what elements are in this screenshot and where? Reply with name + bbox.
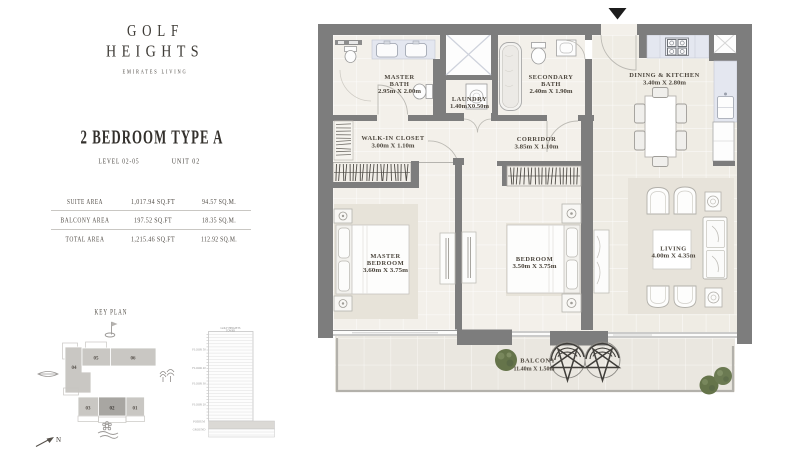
svg-text:GOLF: GOLF — [127, 21, 184, 40]
svg-text:FLOOR 20: FLOOR 20 — [192, 403, 206, 407]
svg-text:01: 01 — [133, 407, 139, 412]
svg-text:3.40m X 2.80m: 3.40m X 2.80m — [643, 81, 686, 87]
svg-text:197.52 SQ.FT: 197.52 SQ.FT — [134, 217, 172, 225]
svg-text:06: 06 — [131, 357, 137, 362]
svg-text:05: 05 — [94, 357, 100, 362]
svg-text:02: 02 — [110, 407, 116, 412]
svg-text:WALK-IN CLOSET: WALK-IN CLOSET — [361, 135, 425, 142]
svg-text:N: N — [56, 436, 61, 444]
svg-text:TOTAL AREA: TOTAL AREA — [66, 236, 105, 244]
svg-text:MASTER: MASTER — [384, 74, 414, 81]
svg-text:BEDROOM: BEDROOM — [367, 260, 404, 267]
svg-text:3.85m X 1.10m: 3.85m X 1.10m — [515, 145, 559, 151]
svg-text:03: 03 — [86, 407, 92, 412]
svg-text:3.50m X 3.75m: 3.50m X 3.75m — [513, 264, 557, 270]
svg-text:SUITE AREA: SUITE AREA — [67, 198, 103, 206]
svg-text:LAUNDRY: LAUNDRY — [452, 96, 487, 103]
svg-text:BATH: BATH — [390, 81, 410, 88]
svg-text:94.57 SQ.M.: 94.57 SQ.M. — [202, 198, 236, 206]
svg-text:KEY PLAN: KEY PLAN — [95, 308, 128, 317]
svg-text:LEVEL 02-05: LEVEL 02-05 — [99, 157, 140, 166]
svg-text:LIVING: LIVING — [660, 246, 686, 253]
svg-text:BATH: BATH — [541, 81, 561, 88]
svg-text:UNIT 02: UNIT 02 — [172, 157, 201, 166]
svg-text:BALCONY: BALCONY — [520, 358, 555, 365]
svg-text:BALCONY AREA: BALCONY AREA — [61, 217, 110, 225]
svg-text:SECONDARY: SECONDARY — [529, 74, 574, 81]
svg-text:04: 04 — [72, 366, 78, 371]
svg-text:DINING & KITCHEN: DINING & KITCHEN — [629, 72, 700, 79]
svg-text:18.35 SQ.M.: 18.35 SQ.M. — [202, 217, 236, 225]
svg-text:MASTER: MASTER — [370, 253, 400, 260]
svg-text:1,215.46 SQ.FT: 1,215.46 SQ.FT — [131, 236, 175, 244]
svg-text:EMIRATES LIVING: EMIRATES LIVING — [123, 69, 188, 76]
svg-text:3.60m X 3.75m: 3.60m X 3.75m — [363, 268, 408, 274]
svg-text:PODIUM: PODIUM — [193, 420, 205, 424]
svg-text:FLOOR 40: FLOOR 40 — [192, 366, 206, 370]
svg-text:3.00m X 1.10m: 3.00m X 1.10m — [372, 144, 415, 150]
svg-text:TOWER: TOWER — [226, 330, 235, 333]
svg-text:1.40mX0.50m: 1.40mX0.50m — [450, 104, 489, 110]
svg-text:1,017.94 SQ.FT: 1,017.94 SQ.FT — [131, 198, 175, 206]
svg-text:HEIGHTS: HEIGHTS — [106, 42, 204, 61]
svg-text:FLOOR 50: FLOOR 50 — [192, 348, 206, 352]
svg-text:CORRIDOR: CORRIDOR — [517, 136, 557, 143]
svg-text:2.95m X 2.00m: 2.95m X 2.00m — [378, 89, 421, 95]
svg-text:11.40m X 1.50m: 11.40m X 1.50m — [514, 367, 555, 373]
svg-text:2.40m X 1.90m: 2.40m X 1.90m — [530, 89, 573, 95]
svg-text:4.00m X 4.35m: 4.00m X 4.35m — [652, 254, 696, 260]
svg-text:2 BEDROOM TYPE A: 2 BEDROOM TYPE A — [81, 127, 224, 149]
svg-text:GROUND: GROUND — [193, 428, 207, 432]
svg-text:112.92 SQ.M.: 112.92 SQ.M. — [201, 236, 237, 244]
svg-text:BEDROOM: BEDROOM — [516, 256, 553, 263]
svg-text:FLOOR 30: FLOOR 30 — [192, 382, 206, 386]
